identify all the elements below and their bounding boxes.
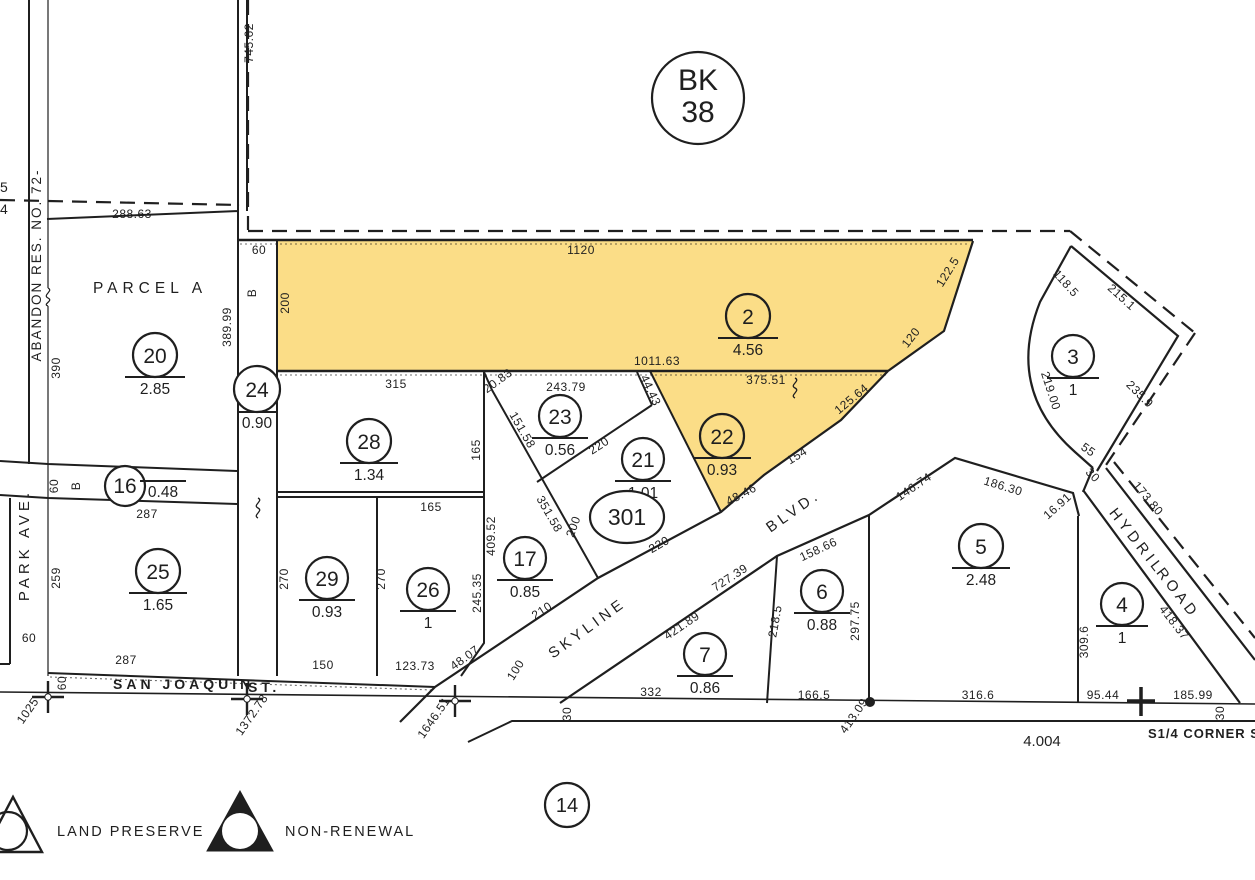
dim-123-73: 123.73 [395,659,435,673]
dim-173-80: 173.80 [1130,479,1166,518]
dimension-labels: 745.62 288.63 1120 200 1011.63 375.51 12… [14,23,1227,741]
parcel-4-marker[interactable]: 4 1 [1096,583,1148,647]
book-badge-line1: BK [678,64,718,97]
dim-1025: 1025 [14,695,42,727]
parcel-29-acres: 0.93 [312,604,342,621]
san-joaquin-suffix-label: ST. [248,679,280,695]
parcel-5-acres: 2.48 [966,572,996,589]
land-preserve-symbol [0,797,42,852]
dim-200-inner: 200 [563,514,584,539]
skyline-suffix-label: BLVD. [763,486,824,536]
parcel-5-number: 5 [975,536,987,559]
dim-220-upper: 220 [586,434,612,457]
parcel-20-acres: 2.85 [140,381,170,398]
dim-1120: 1120 [567,243,595,257]
parcel-6-number: 6 [816,581,828,604]
parcel-16-acres: 0.48 [148,484,178,501]
edge-fragment-bottom: 4 [0,201,8,217]
dim-146-74: 146.74 [893,470,934,504]
dim-351-58: 351.58 [533,493,565,534]
parcel-23-number: 23 [548,406,571,429]
dim-332: 332 [640,685,662,699]
parcel-28-number: 28 [357,431,380,454]
dim-288-63: 288.63 [112,207,152,221]
dim-158-66: 158.66 [797,535,839,564]
dim-16-91: 16.91 [1041,490,1075,522]
dim-60-parcel16: 60 [47,479,61,493]
parcel-24-acres: 0.90 [242,415,273,432]
parcel-28-marker[interactable]: 28 1.34 [340,419,398,484]
dim-315: 315 [385,377,407,391]
survey-cross-1-center [45,694,51,700]
dim-389-99: 389.99 [220,307,234,347]
dim-210: 210 [529,599,555,622]
survey-cross-3-center [452,698,458,704]
dim-165-horizontal: 165 [420,500,442,514]
sheet-badge: 14 [545,783,589,827]
parcel-2-region[interactable] [278,241,973,371]
parcel-26-number: 26 [416,579,439,602]
dim-218-5: 218.5 [765,604,784,638]
parcel-17-number: 17 [513,548,536,571]
parcel-23-acres: 0.56 [545,442,575,459]
dim-100: 100 [504,657,527,683]
parcel-29-number: 29 [315,568,338,591]
dim-413-09: 413.09 [837,695,871,736]
parcel-26-acres: 1 [424,615,433,632]
dim-409-52: 409.52 [484,516,498,556]
dim-270-west: 270 [277,568,291,590]
dim-375-51: 375.51 [746,373,786,387]
dim-60-park-ave: 60 [22,631,36,645]
dim-243-79: 243.79 [546,380,586,394]
dim-235-9: 235.9 [1123,378,1156,411]
parcel-22-number: 22 [710,426,733,449]
parcel-4-acres: 1 [1118,630,1127,647]
parcel-25-acres: 1.65 [143,597,173,614]
dim-215-1: 215.1 [1105,281,1139,313]
parcel-4-number: 4 [1116,594,1128,617]
park-ave-label: PARK AVE. [16,489,33,601]
dim-118-5: 118.5 [1050,267,1082,300]
parcel-301-marker[interactable]: 301 [590,491,664,543]
abandon-res-label: ABANDON RES. NO. 72- [29,168,44,361]
parcel-7-marker[interactable]: 7 0.86 [677,633,733,697]
dim-259: 259 [49,567,63,589]
dim-166-5: 166.5 [798,688,831,702]
edge-fragment-top: 5 [0,179,8,195]
south-road-edge [468,721,1255,742]
dim-745-62: 745.62 [242,23,256,63]
parcel-6-acres: 0.88 [807,617,837,634]
dim-60-san-joaquin: 60 [55,676,69,690]
parcel-25-marker[interactable]: 25 1.65 [129,549,187,614]
dim-200-west: 200 [278,292,292,314]
dim-287-lower: 287 [115,653,137,667]
dim-95-44: 95.44 [1087,688,1120,702]
dim-287-upper: 287 [136,507,158,521]
dim-245-35: 245.35 [470,573,484,613]
parcel-17-acres: 0.85 [510,584,540,601]
parcel-16-number: 16 [113,475,136,498]
dim-390: 390 [49,357,63,379]
section-line [0,692,1255,704]
survey-cross-2-center [244,696,250,702]
parcel-20-marker[interactable]: 20 2.85 [125,333,185,398]
dim-30-hydril: 30 [1213,706,1227,720]
parcel-6-marker[interactable]: 6 0.88 [794,570,850,634]
sheet-badge-number: 14 [556,795,578,817]
parcel-29-marker[interactable]: 29 0.93 [299,557,355,621]
dim-185-99: 185.99 [1173,688,1213,702]
parcel-5-marker[interactable]: 5 2.48 [952,524,1010,589]
survey-cross-4 [1127,687,1155,716]
parcel-17-marker[interactable]: 17 0.85 [497,537,553,601]
parcel-28-acres: 1.34 [354,467,385,484]
dim-165-vertical: 165 [469,439,483,461]
dim-B-parcel16: B [69,482,83,491]
parcel-a-label: PARCEL A [93,280,207,297]
dim-297-75: 297.75 [848,601,862,641]
parcel-22-acres: 0.93 [707,462,737,479]
book-badge: BK 38 [652,52,744,144]
section-corner-label: S1/4 CORNER SEC [1148,726,1255,741]
parcel-16-marker[interactable]: 16 0.48 [105,466,186,506]
parcel-2-acres: 4.56 [733,342,763,359]
parcel-7-acres: 0.86 [690,680,720,697]
non-renewal-label: NON-RENEWAL [285,824,415,840]
land-preserve-label: LAND PRESERVE [57,824,204,840]
parcel-2-number: 2 [742,306,754,329]
parcel-20-number: 20 [143,345,166,368]
parcel-3-acres: 1 [1069,382,1078,399]
parcel-301-number: 301 [608,504,646,530]
parcel-21-number: 21 [631,449,654,472]
parcel-3-number: 3 [1067,346,1079,369]
parcel-24-marker[interactable]: 24 0.90 [234,366,280,432]
parcel-25-number: 25 [146,561,169,584]
dim-60-strip-top: 60 [252,243,266,257]
parcel-26-marker[interactable]: 26 1 [400,568,456,632]
dim-1011-63: 1011.63 [634,354,680,368]
dim-316-6: 316.6 [962,688,995,702]
dim-270-east: 270 [374,568,388,590]
assessor-parcel-map: BK 38 14 20 2.85 24 0.90 2 4.56 3 1 16 0… [0,0,1255,880]
dim-B-strip: B [245,289,259,298]
book-badge-line2: 38 [681,96,714,129]
dim-219-00: 219.00 [1038,370,1064,412]
legend: LAND PRESERVE NON-RENEWAL [0,791,415,852]
dim-150: 150 [312,658,334,672]
parcel-7-number: 7 [699,644,711,667]
san-joaquin-label: SAN JOAQUIN [113,676,254,692]
dim-309-6: 309.6 [1077,626,1091,659]
parcel-23-marker[interactable]: 23 0.56 [532,395,588,459]
section-total-label: 4.004 [1023,733,1061,750]
non-renewal-symbol [207,791,273,851]
parcel-24-number: 24 [245,379,269,402]
dim-30-skyline: 30 [560,707,574,721]
